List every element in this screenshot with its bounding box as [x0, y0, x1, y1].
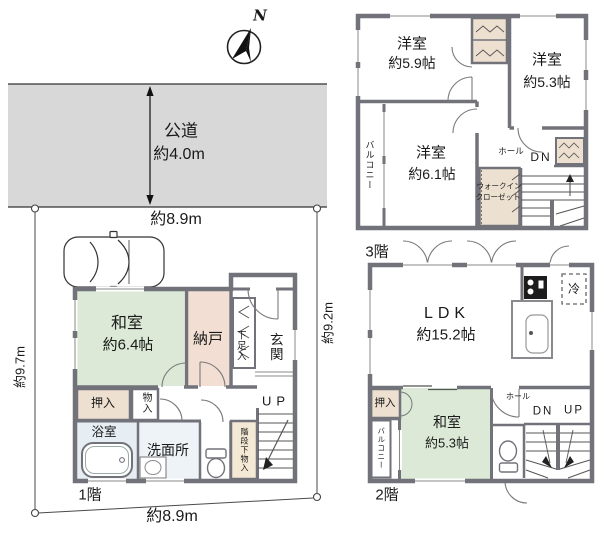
f2-washitsu-room — [399, 388, 491, 480]
site-depth-right-label: 約9.2m — [322, 302, 335, 344]
f1-bathroom-label: 浴室 — [91, 426, 116, 439]
road-frontage-label: 約8.9m — [150, 212, 202, 228]
f1-washitsu-size: 約6.4帖 — [103, 338, 154, 353]
f3-room1-size: 約5.9帖 — [388, 56, 435, 70]
f1-floor-label: 1階 — [78, 488, 101, 503]
fridge-label: 冷 — [568, 283, 580, 295]
f2-balcony-label: バルコニー — [377, 427, 385, 470]
f2-floor-label: 2階 — [375, 488, 398, 503]
f1-washitsu-label: 和室 — [111, 316, 143, 332]
f3-room3-label: 洋室 — [416, 146, 446, 161]
f1-up-label: UP — [262, 395, 290, 408]
f3-room1-label: 洋室 — [397, 37, 427, 52]
site-width-label: 約8.9m — [146, 509, 198, 525]
f1-under-stairs-label: 階段下物入 — [240, 428, 248, 473]
f2-oshiire-label: 押入 — [375, 398, 396, 409]
plan-graphics — [0, 0, 600, 538]
bathtub-icon — [82, 443, 132, 477]
f2-ldk-size: 約15.2帖 — [416, 328, 475, 343]
f1-oshiire-label: 押入 — [91, 397, 115, 409]
floor-plan-image: N 公道 約4.0m 約8.9m 約8.9m 約9.7m 約9.2m 和室 約6… — [0, 0, 600, 538]
compass-n-label: N — [253, 9, 267, 24]
f3-closet — [472, 18, 507, 63]
f3-dn-label: DN — [530, 151, 551, 163]
kitchen-stove-icon — [524, 276, 547, 299]
f3-room3-size: 約6.1帖 — [408, 167, 455, 181]
wic-label-line2: クローゼット — [476, 193, 521, 201]
f1-entrance-label: 玄関 — [268, 333, 282, 362]
f2-up-label: UP — [564, 405, 584, 417]
kitchen-sink-icon — [512, 301, 552, 358]
compass-icon — [228, 28, 261, 64]
f1-nando-label: 納戸 — [193, 332, 223, 347]
f3-hanger-closet — [556, 138, 584, 164]
floor2-plan — [368, 241, 595, 503]
car-icon — [64, 232, 164, 293]
f3-hall-label: ホール — [498, 147, 524, 156]
site-depth-left-label: 約9.7m — [14, 346, 27, 388]
f2-dn-label: DN — [533, 406, 554, 418]
f2-washitsu-size: 約5.3帖 — [425, 437, 469, 450]
f1-monoire-label: 物入 — [140, 392, 150, 414]
road-label: 公道 — [164, 123, 198, 140]
f3-floor-label: 3階 — [365, 245, 388, 260]
f3-balcony-label: バルコニー — [365, 140, 374, 190]
wic-label-line1: ウォークイン — [477, 182, 522, 190]
road-width-label: 約4.0m — [153, 147, 205, 163]
f2-hall-label: ホール — [506, 393, 530, 401]
f2-washitsu-label: 和室 — [433, 415, 461, 429]
f1-shoe-cabinet-label: 下足入 — [235, 330, 245, 362]
f3-room2-size: 約5.3帖 — [523, 75, 570, 89]
f2-ldk-label: LDK — [424, 306, 470, 322]
f1-washroom-label: 洗面所 — [147, 443, 189, 457]
floor3-plan — [356, 14, 589, 229]
washer-pan-icon — [140, 457, 166, 478]
f1-toilet-icon — [206, 449, 226, 478]
f3-room2-label: 洋室 — [532, 53, 562, 68]
f2-toilet-icon — [500, 441, 518, 472]
